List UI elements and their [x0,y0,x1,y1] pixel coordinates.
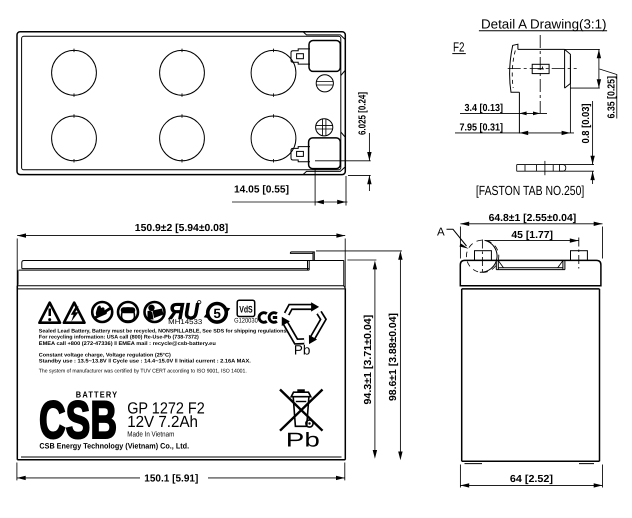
svg-text:64 [2.52]: 64 [2.52] [510,474,553,485]
svg-text:F2: F2 [453,39,465,54]
svg-text:6.025 [0.24]: 6.025 [0.24] [358,92,369,135]
svg-text:5: 5 [213,306,221,321]
svg-text:14.05 [0.55]: 14.05 [0.55] [234,184,289,195]
svg-text:Sealed Lead Battery, Battery m: Sealed Lead Battery, Battery must be rec… [39,328,289,334]
svg-text:150.1 [5.91]: 150.1 [5.91] [144,473,198,484]
svg-text:3.4 [0.13]: 3.4 [0.13] [465,103,504,114]
svg-text:Pb: Pb [294,343,311,358]
svg-text:CSB Energy Technology (Vietnam: CSB Energy Technology (Vietnam) Co., Ltd… [39,441,189,450]
svg-text:A: A [437,226,445,238]
svg-text:Made In Vietnam: Made In Vietnam [127,430,174,439]
svg-text:Detail A Drawing(3:1): Detail A Drawing(3:1) [481,16,607,31]
svg-text:64.8±1 [2.55±0.04]: 64.8±1 [2.55±0.04] [489,213,577,224]
svg-text:VdS: VdS [239,304,253,315]
svg-text:Constant voltage charge, Volta: Constant voltage charge, Voltage regulat… [39,352,171,358]
svg-text:Standby use : 13.5~13.8V ‖ C: Standby use : 13.5~13.8V ‖ Cycle use : 1… [39,359,252,365]
svg-text:98.6±1 [3.88±0.04]: 98.6±1 [3.88±0.04] [388,313,399,401]
svg-text:7.95 [0.31]: 7.95 [0.31] [460,123,504,134]
svg-text:G120030: G120030 [234,318,258,325]
svg-text:Pb: Pb [286,430,320,452]
svg-text:150.9±2 [5.94±0.08]: 150.9±2 [5.94±0.08] [135,223,228,234]
svg-text:6.35 [0.25]: 6.35 [0.25] [606,76,617,119]
svg-text:The system of manufacturer was: The system of manufacturer was certified… [39,368,247,374]
svg-text:45 [1.77]: 45 [1.77] [511,230,553,241]
svg-text:MH14533: MH14533 [168,319,202,326]
svg-text:0.8 [0.03]: 0.8 [0.03] [581,104,592,144]
svg-text:94.3±1 [3.71±0.04]: 94.3±1 [3.71±0.04] [363,315,374,405]
svg-text:For recycling information: USA: For recycling information: USA call (800… [39,335,199,341]
svg-text:12V 7.2Ah: 12V 7.2Ah [127,413,198,431]
svg-text:EMEA call +800 (272-47336) ‖: EMEA call +800 (272-47336) ‖ EMEA mail :… [39,341,216,347]
svg-text:[FASTON TAB NO.250]: [FASTON TAB NO.250] [476,183,584,198]
